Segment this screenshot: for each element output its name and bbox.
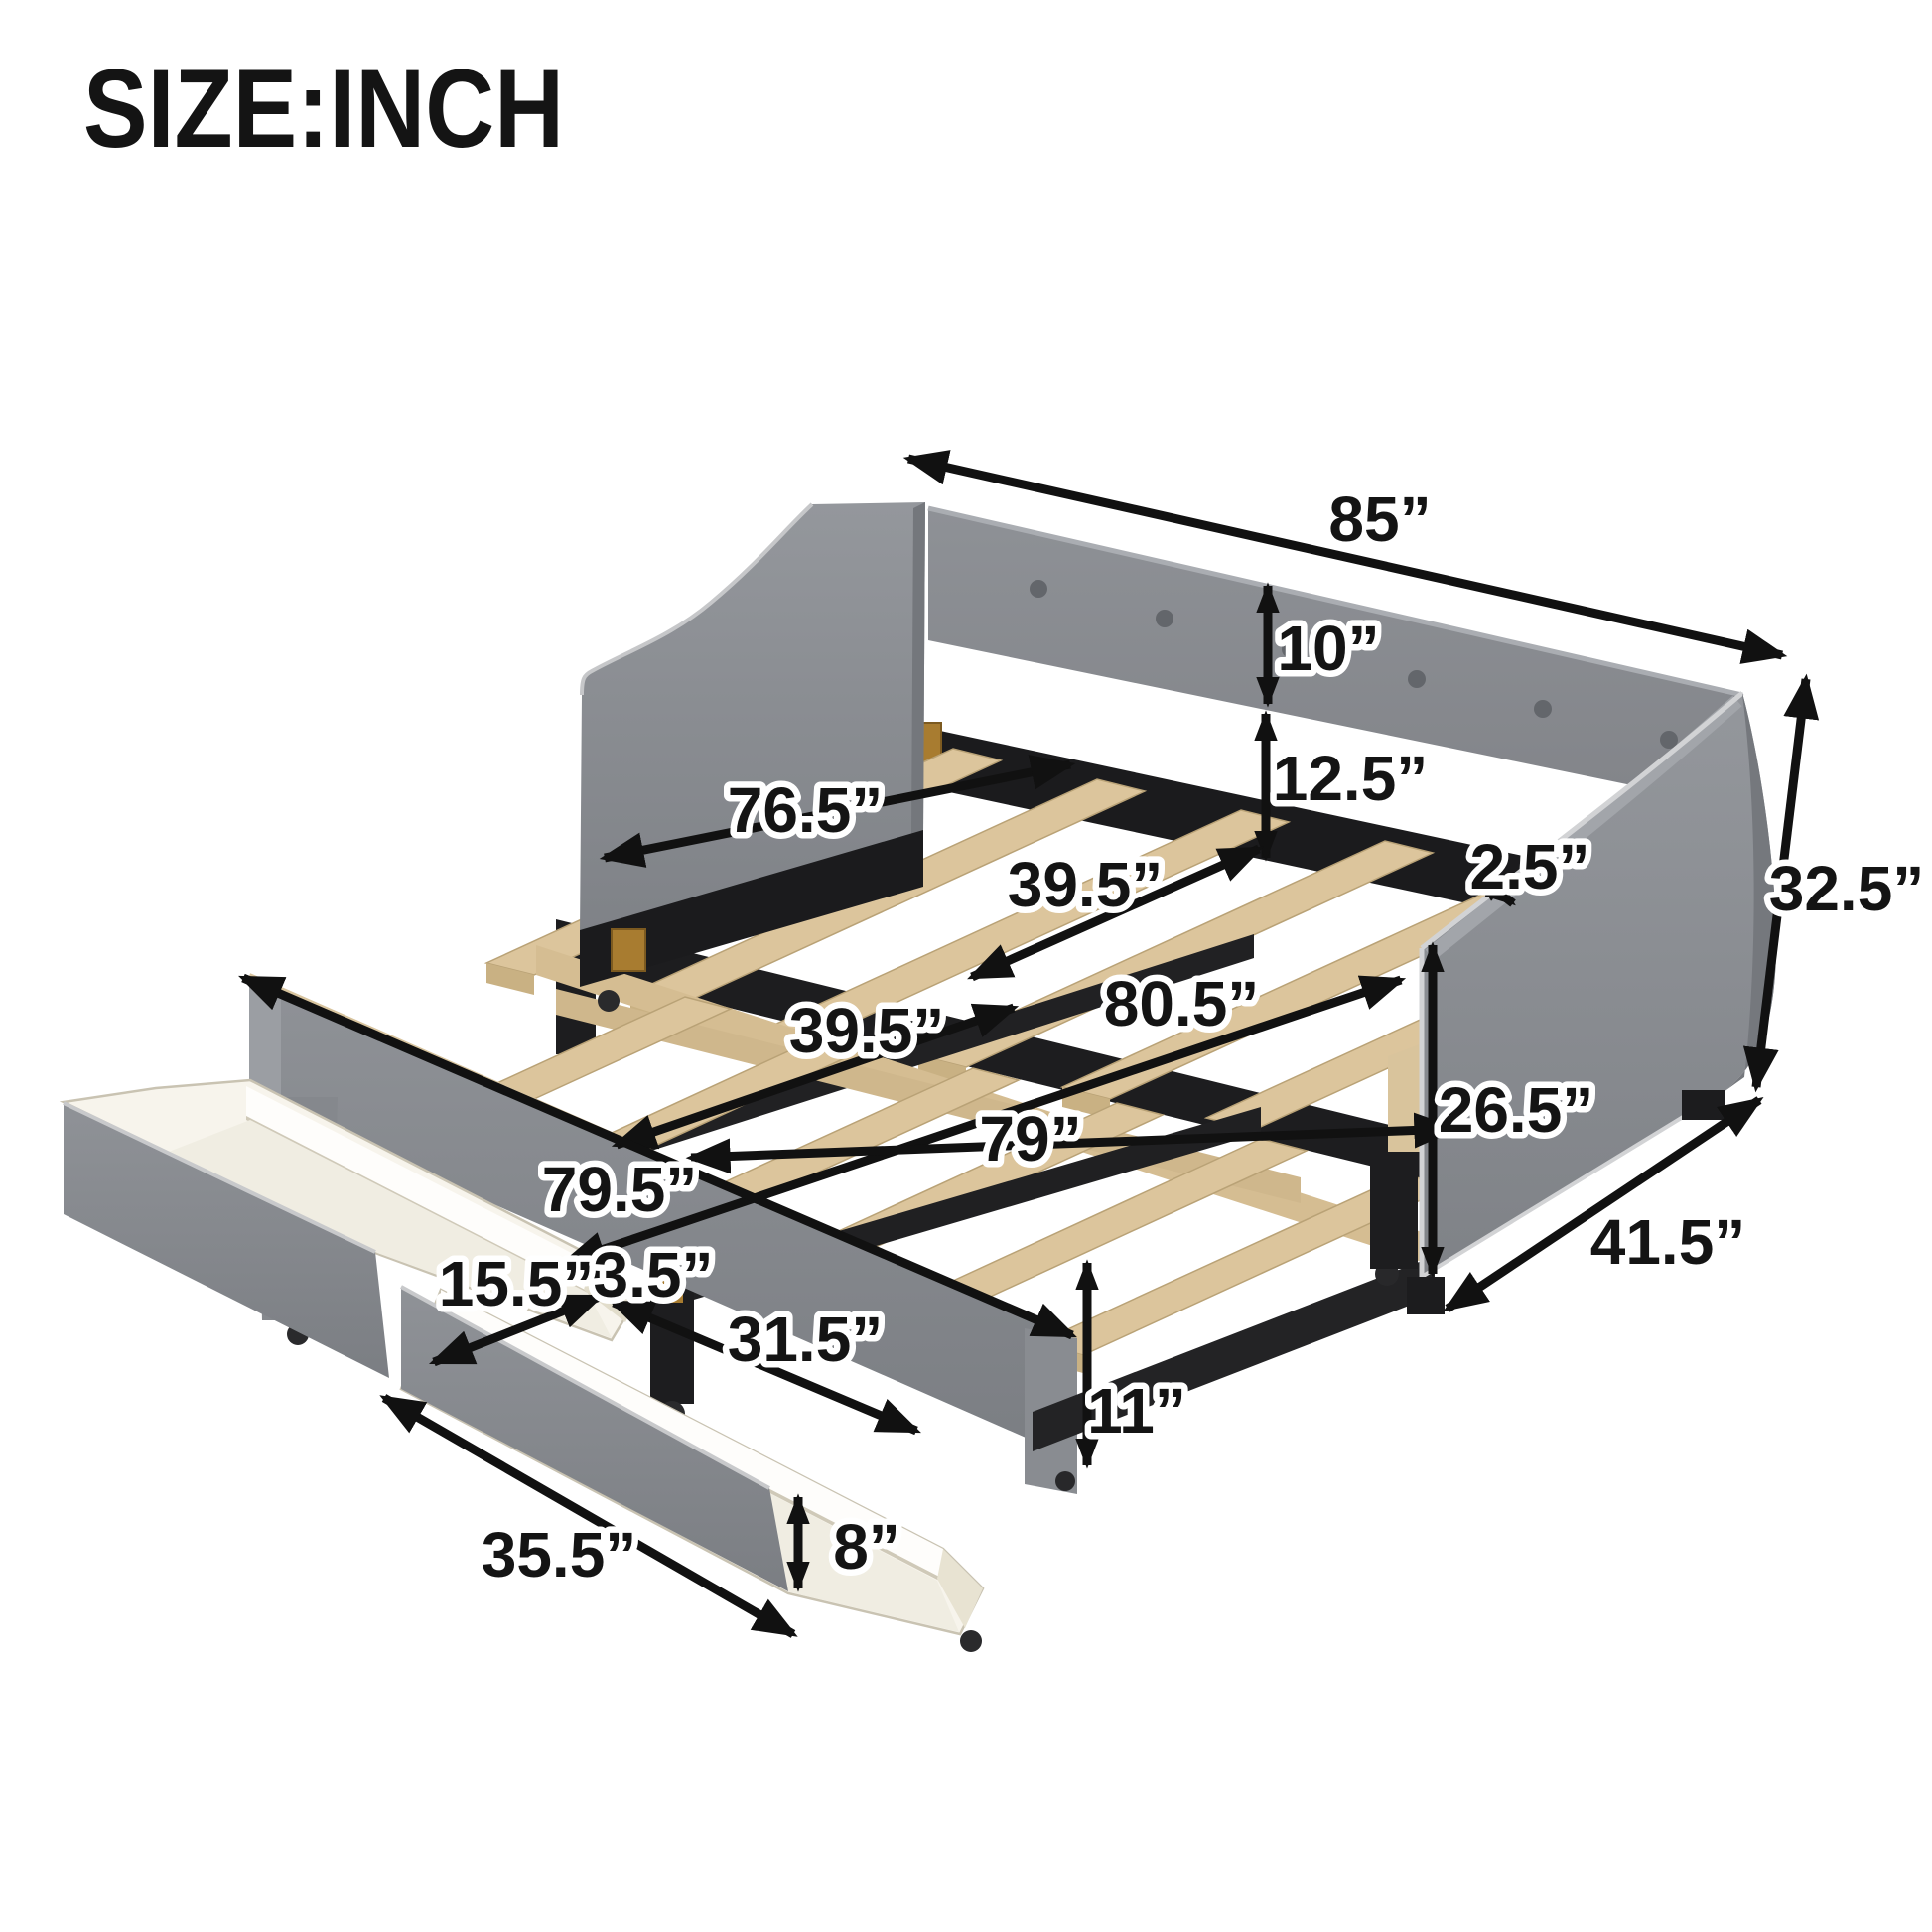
svg-text:79”: 79” xyxy=(979,1103,1081,1174)
svg-text:80.5”: 80.5” xyxy=(1104,968,1260,1039)
svg-text:31.5”: 31.5” xyxy=(728,1304,884,1375)
svg-text:2.5”: 2.5” xyxy=(1470,831,1590,902)
svg-text:32.5”: 32.5” xyxy=(1769,853,1925,924)
svg-text:11”: 11” xyxy=(1087,1375,1186,1447)
svg-text:10”: 10” xyxy=(1277,613,1379,684)
svg-text:SIZE:INCH: SIZE:INCH xyxy=(83,47,564,171)
svg-text:76.5”: 76.5” xyxy=(728,774,884,846)
svg-text:15.5”: 15.5” xyxy=(439,1248,595,1319)
svg-text:3.5”: 3.5” xyxy=(594,1239,714,1311)
svg-text:85”: 85” xyxy=(1328,483,1431,555)
svg-text:12.5”: 12.5” xyxy=(1273,743,1429,814)
svg-text:79.5”: 79.5” xyxy=(542,1154,698,1225)
svg-text:39.5”: 39.5” xyxy=(1008,849,1164,920)
svg-text:35.5”: 35.5” xyxy=(482,1519,637,1590)
svg-text:41.5”: 41.5” xyxy=(1590,1206,1746,1278)
svg-text:8”: 8” xyxy=(833,1511,900,1583)
svg-text:26.5”: 26.5” xyxy=(1439,1074,1594,1146)
svg-text:39.5”: 39.5” xyxy=(789,995,945,1066)
